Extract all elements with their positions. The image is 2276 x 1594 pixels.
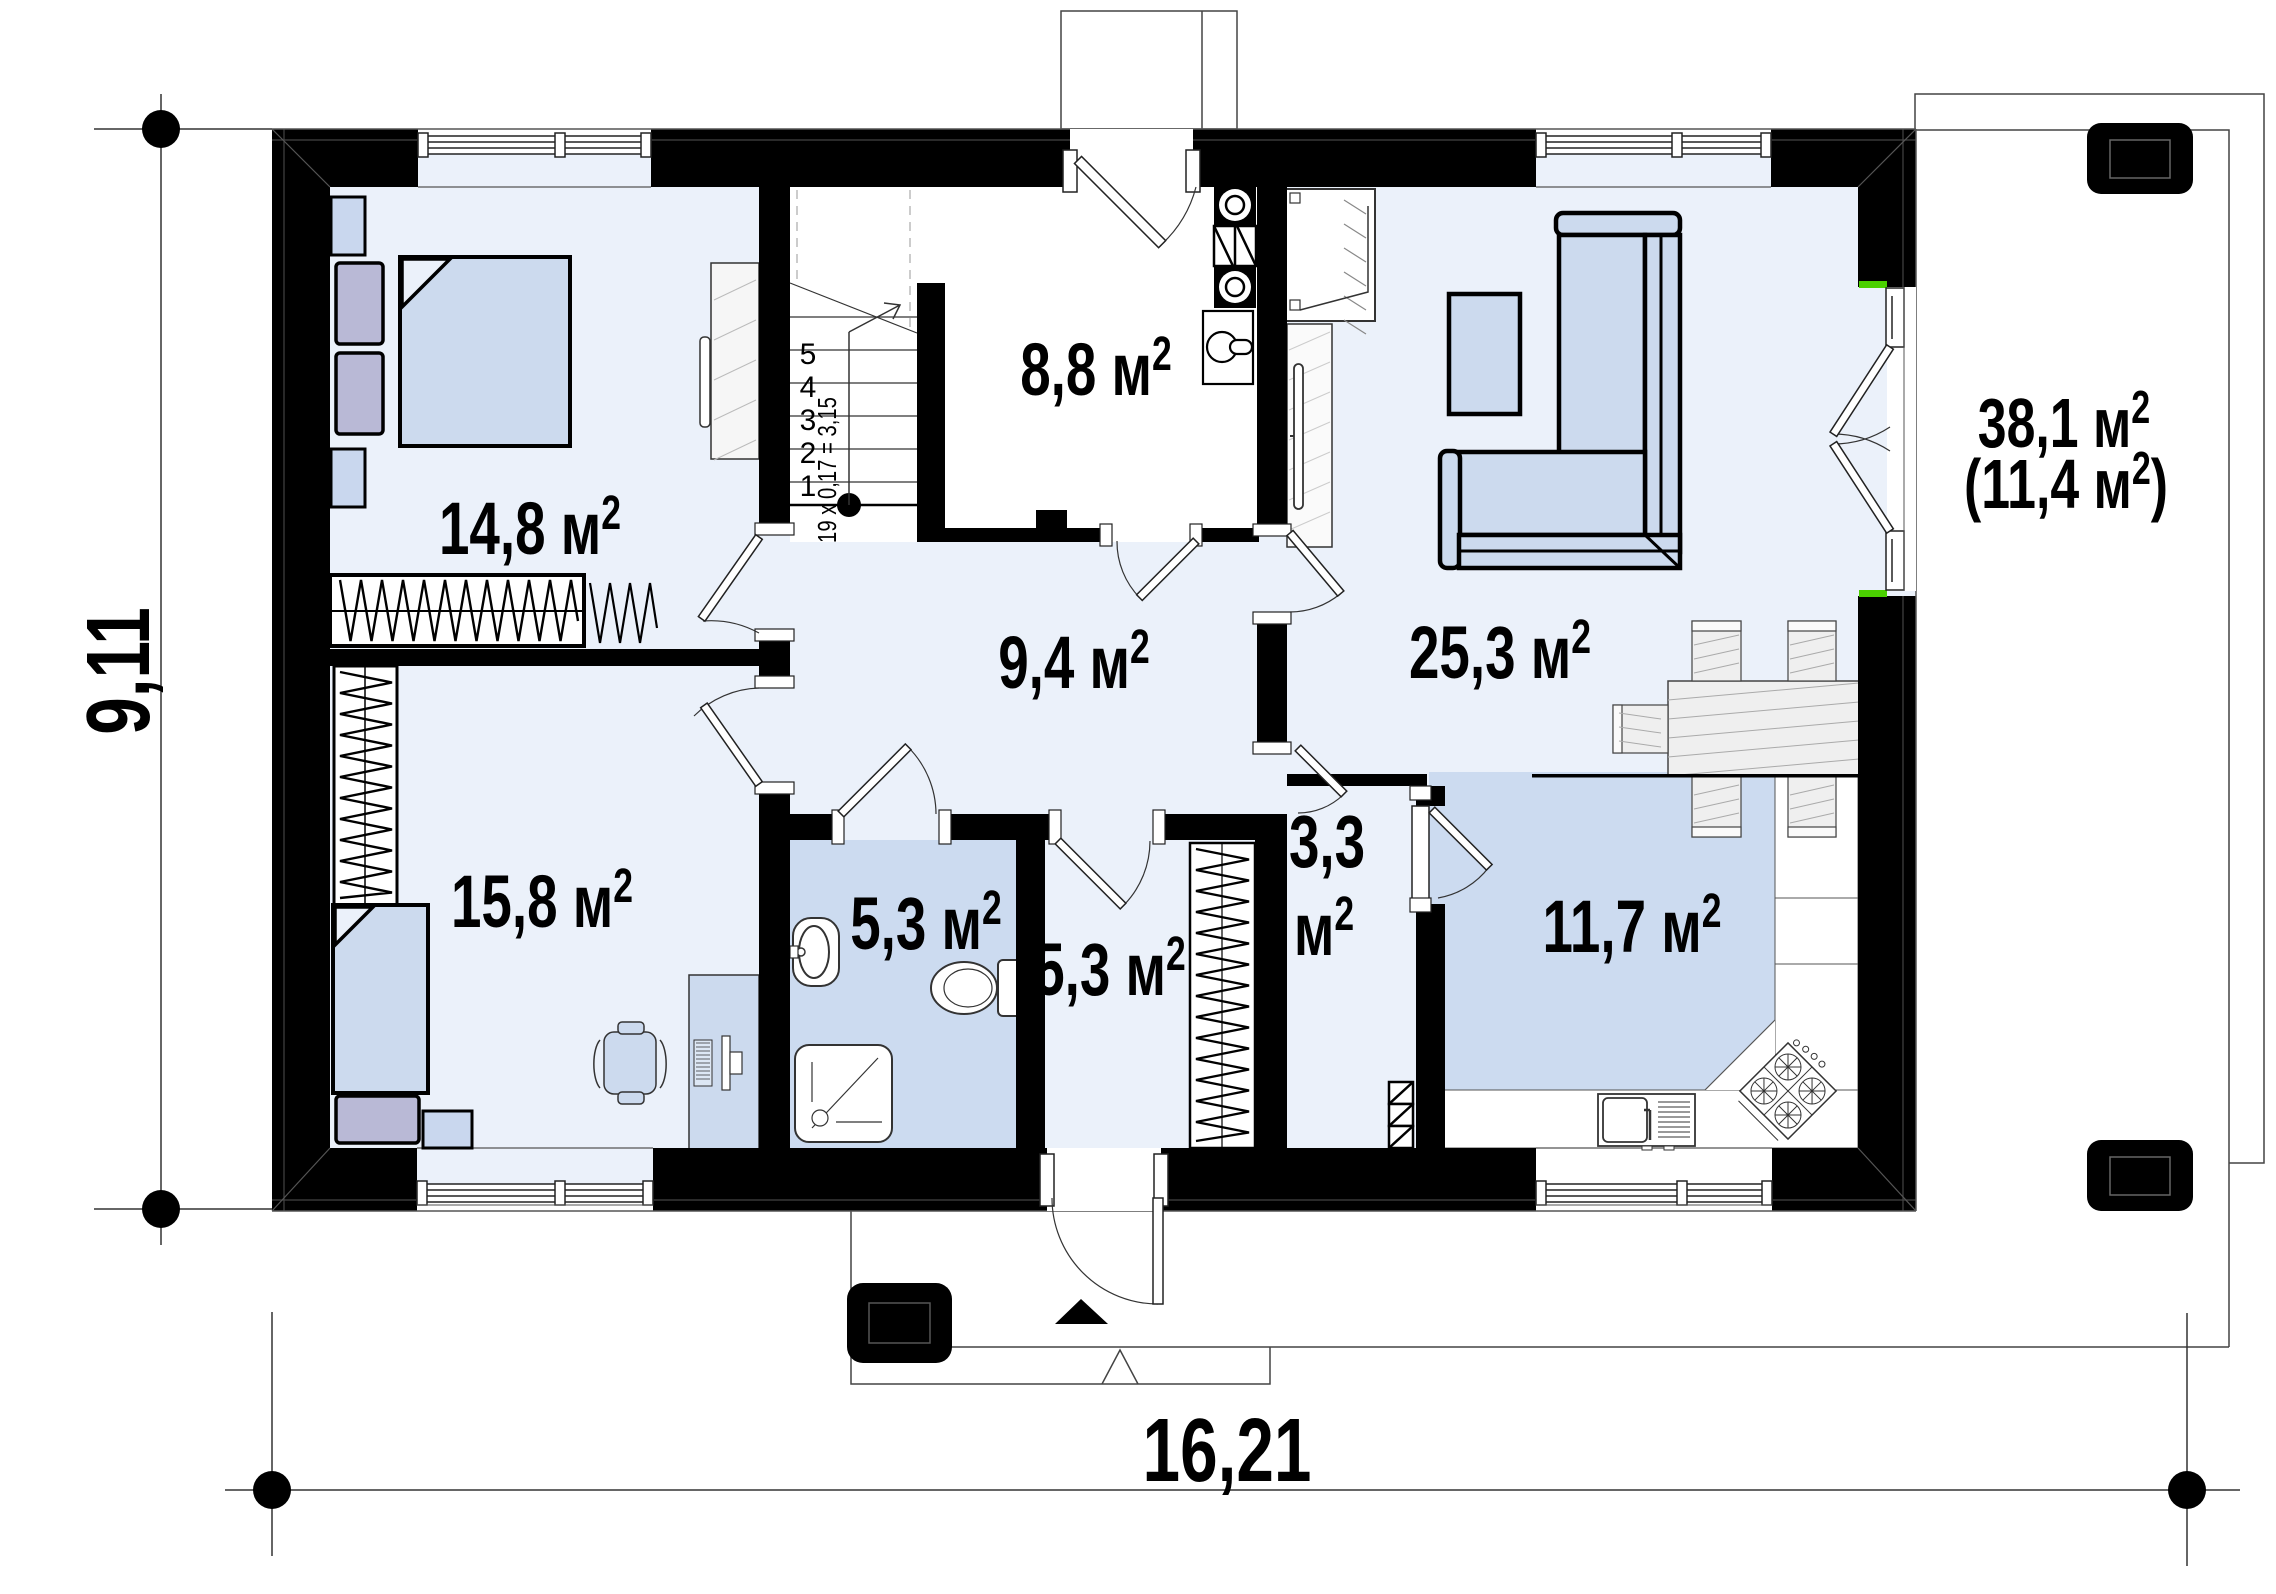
svg-text:5: 5 [800, 338, 817, 371]
svg-text:9,11: 9,11 [68, 607, 169, 735]
svg-text:14,8 м2: 14,8 м2 [439, 486, 621, 570]
svg-text:5,3 м2: 5,3 м2 [850, 881, 1002, 965]
svg-text:19 x 0,17 = 3,15: 19 x 0,17 = 3,15 [813, 397, 842, 543]
svg-text:11,7 м2: 11,7 м2 [1543, 884, 1722, 968]
svg-text:3,3: 3,3 [1289, 800, 1365, 883]
svg-text:8,8 м2: 8,8 м2 [1020, 327, 1172, 411]
svg-text:5,3 м2: 5,3 м2 [1034, 927, 1186, 1011]
svg-text:25,3 м2: 25,3 м2 [1409, 610, 1591, 694]
svg-text:9,4 м2: 9,4 м2 [998, 620, 1150, 704]
svg-text:16,21: 16,21 [1143, 1400, 1312, 1501]
svg-text:15,8 м2: 15,8 м2 [451, 859, 633, 943]
